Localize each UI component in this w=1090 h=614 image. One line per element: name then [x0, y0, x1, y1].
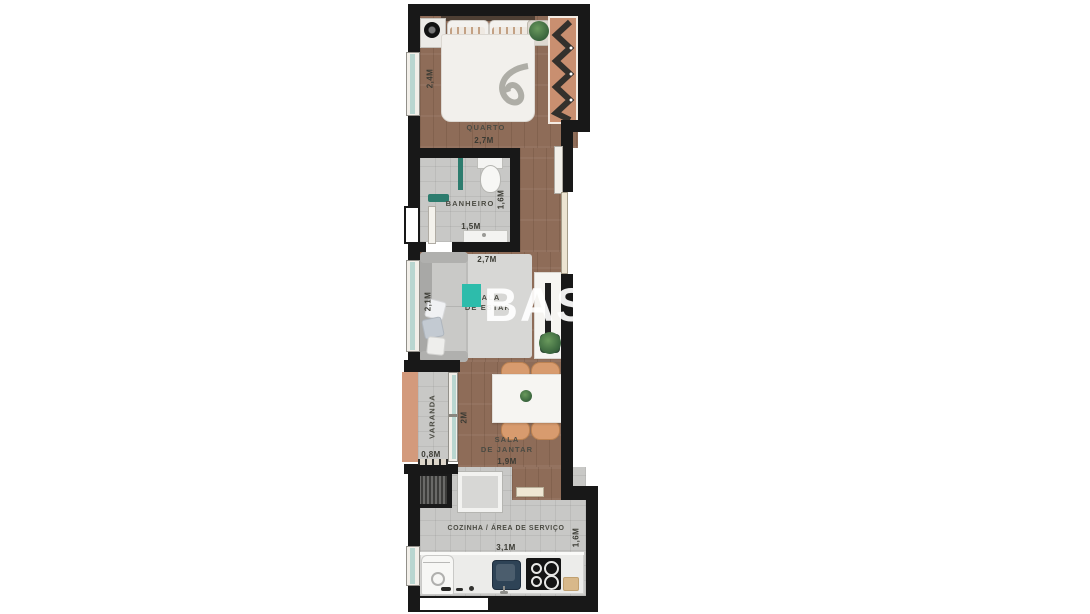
counter-utensil-3: [469, 586, 474, 591]
cooktop-burner-small-2: [531, 576, 542, 587]
dim-varanda-width: 0,8M: [411, 450, 451, 459]
dim-jantar-width: 1,9M: [487, 457, 527, 466]
watermark-text: BASMA: [484, 281, 666, 328]
washing-machine-door: [431, 572, 445, 586]
label-sala-jantar-line2: DE JANTAR: [481, 445, 533, 454]
dim-cozinha-height: 1,6M: [572, 518, 581, 558]
label-quarto: QUARTO: [456, 123, 516, 132]
wall-right-top: [578, 4, 590, 126]
plant-bedroom: [529, 21, 549, 41]
dim-banheiro-height: 1,6M: [497, 180, 506, 220]
label-varanda: VARANDA: [428, 387, 437, 447]
kitchen-sink-basin: [496, 564, 515, 581]
floor-plan-canvas: QUARTO 2,7M 2,4M BANHEIRO 1,5M 1,6M 2,7M…: [0, 0, 1090, 614]
kitchen-door-threshold: [516, 487, 544, 497]
balcony-railing: [402, 372, 418, 462]
bottom-ledge: [420, 598, 488, 610]
dim-cozinha-width: 3,1M: [486, 543, 526, 552]
wall-bathroom-living-right: [452, 242, 512, 252]
cooktop-burner-large-1: [544, 561, 559, 576]
dim-banheiro-width: 1,5M: [451, 222, 491, 231]
kitchen-window-glass: [410, 548, 415, 584]
shower-glass-panel: [458, 156, 463, 190]
wall-top: [408, 4, 590, 16]
label-cozinha: COZINHA / ÁREA DE SERVIÇO: [426, 525, 586, 532]
plant-living: [539, 332, 561, 354]
counter-utensil-2: [456, 588, 463, 591]
dim-quarto-width: 2,7M: [464, 136, 504, 145]
watermark-logo-square: [462, 284, 481, 307]
wall-kitchen-left-upper: [408, 472, 420, 546]
bedroom-window-glass: [410, 54, 415, 114]
label-sala-jantar: SALA DE JANTAR: [467, 435, 547, 455]
dim-sala-estar-height: 2,1M: [424, 282, 433, 322]
dim-quarto-height: 2,4M: [426, 59, 435, 99]
wall-bedroom-left-upper: [408, 4, 420, 52]
label-banheiro: BANHEIRO: [435, 199, 505, 208]
wall-bathroom-left-lower: [408, 244, 420, 260]
cooktop-burner-small-1: [531, 563, 542, 574]
vanity-faucet: [482, 233, 486, 237]
glass-door-handle: [449, 414, 457, 417]
entry-opening-frame: [561, 192, 568, 274]
wall-bathroom-corridor: [510, 148, 520, 252]
cooktop-burner-large-2: [544, 575, 559, 590]
wardrobe-clothes: [550, 18, 576, 122]
service-shaft: [458, 472, 502, 512]
ac-condenser-grille: [419, 476, 447, 504]
label-sala-jantar-line1: SALA: [495, 435, 520, 444]
bathroom-door: [428, 206, 436, 244]
bedroom-door-leaf: [554, 146, 563, 194]
sink-faucet-head: [500, 591, 508, 594]
dim-jantar-height: 2M: [460, 398, 469, 438]
plant-dining-table: [520, 390, 532, 402]
blanket-fold: [488, 60, 534, 118]
utility-shaft-box: [404, 206, 420, 244]
sofa-cushion-3: [426, 336, 446, 356]
cutting-board: [563, 577, 579, 591]
counter-utensil-1: [441, 587, 451, 591]
bedside-lamp: [424, 22, 440, 38]
living-window-glass: [410, 262, 415, 350]
balcony-glass-door: [452, 375, 456, 459]
dim-sala-estar-width: 2,7M: [467, 255, 507, 264]
wardrobe: [548, 16, 578, 124]
wall-living-balcony: [404, 360, 460, 372]
wall-bedroom-bathroom: [408, 148, 512, 158]
wall-kitchen-left-lower: [408, 584, 420, 598]
dimension-ticks: [418, 459, 448, 465]
wall-bathroom-left-upper: [408, 158, 420, 206]
washing-machine-panel: [423, 562, 450, 563]
wall-step-bottom-right: [561, 486, 598, 500]
sofa-armrest-top: [420, 252, 468, 263]
